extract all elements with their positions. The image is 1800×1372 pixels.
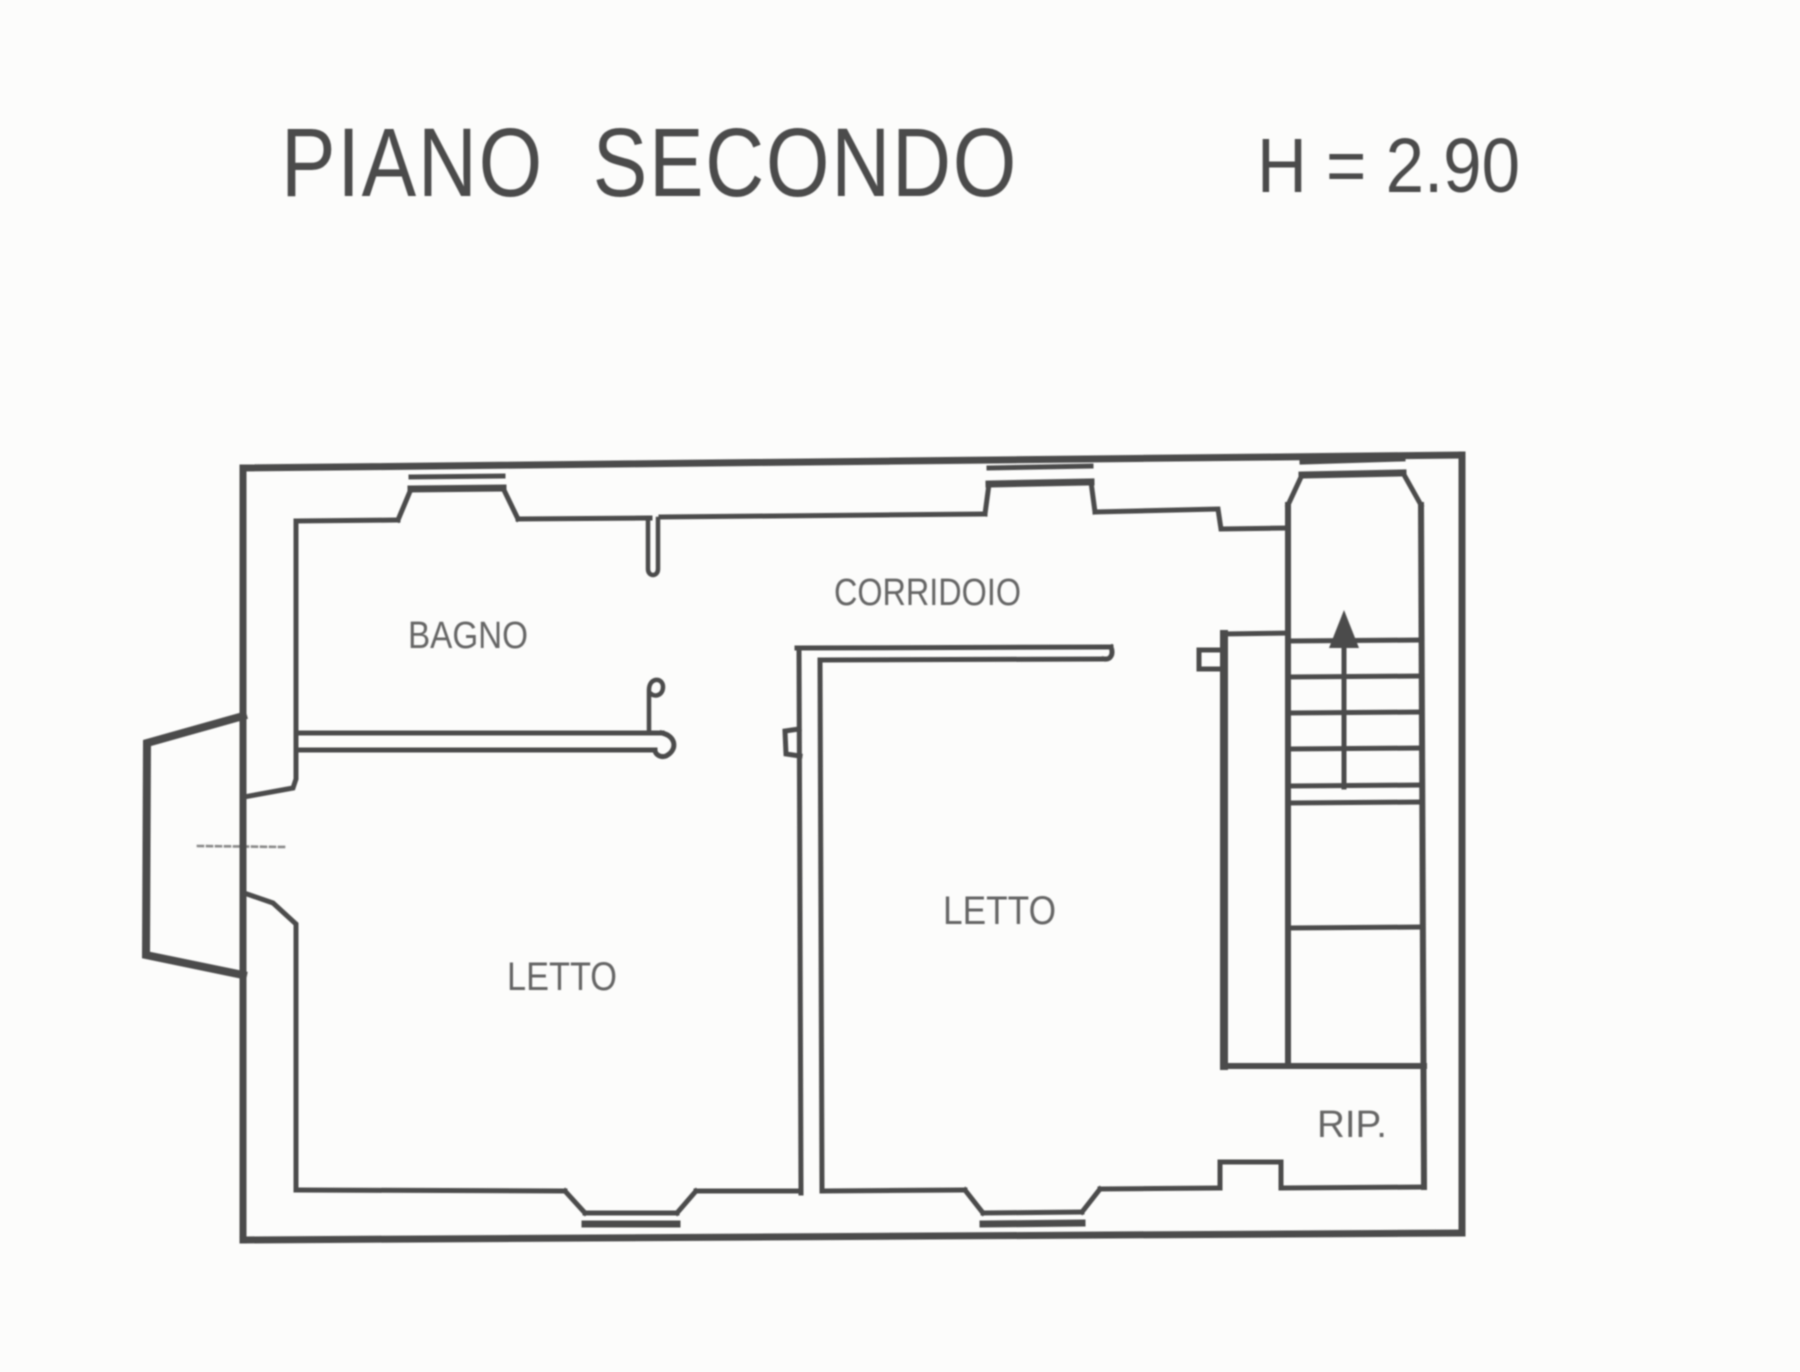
svg-text:LETTO: LETTO: [943, 889, 1056, 933]
svg-text:PIANO SECONDO: PIANO SECONDO: [281, 108, 1018, 217]
svg-text:CORRIDOIO: CORRIDOIO: [834, 572, 1021, 614]
svg-text:LETTO: LETTO: [507, 955, 617, 999]
svg-text:BAGNO: BAGNO: [408, 615, 528, 657]
svg-text:H = 2.90: H = 2.90: [1257, 123, 1520, 209]
svg-text:RIP.: RIP.: [1317, 1104, 1387, 1146]
